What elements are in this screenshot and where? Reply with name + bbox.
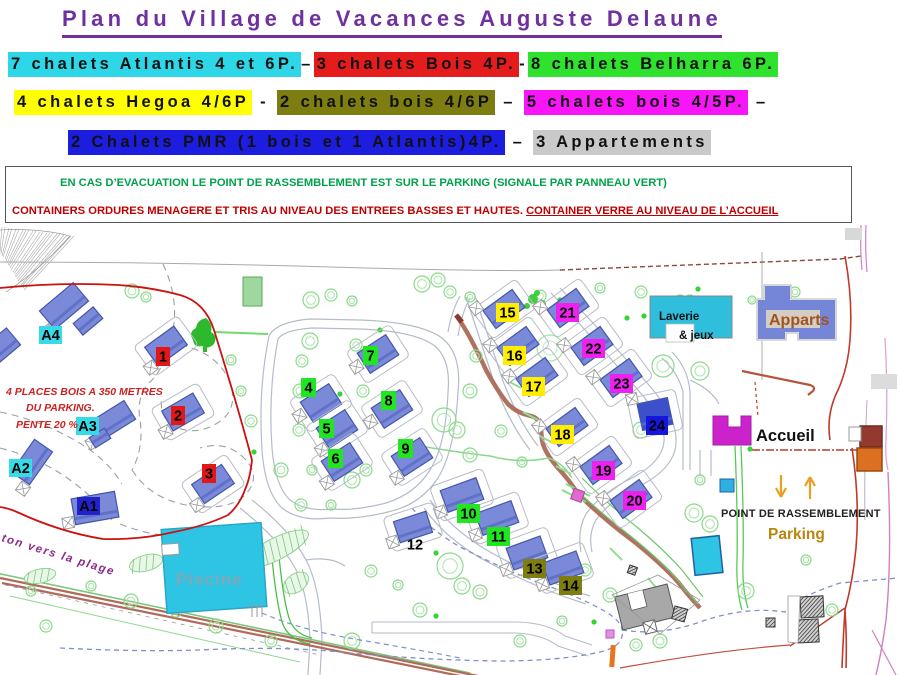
svg-text:4 PLACES BOIS A 350 METRES: 4 PLACES BOIS A 350 METRES: [5, 386, 163, 398]
svg-text:23: 23: [613, 377, 629, 393]
svg-text:DU PARKING.: DU PARKING.: [26, 402, 95, 414]
svg-text:3: 3: [205, 467, 213, 483]
svg-text:A1: A1: [79, 499, 98, 515]
svg-text:24: 24: [649, 419, 665, 435]
svg-text:ton vers la plage: ton vers la plage: [0, 532, 116, 578]
svg-text:1: 1: [159, 350, 167, 366]
svg-text:18: 18: [554, 428, 570, 444]
svg-text:19: 19: [595, 464, 611, 480]
svg-text:A4: A4: [41, 328, 60, 344]
svg-text:POINT DE RASSEMBLEMENT: POINT DE RASSEMBLEMENT: [721, 508, 881, 520]
svg-text:2: 2: [174, 409, 182, 425]
svg-text:15: 15: [499, 306, 515, 322]
svg-text:22: 22: [585, 342, 601, 358]
svg-text:8: 8: [384, 394, 392, 410]
svg-text:A2: A2: [11, 461, 30, 477]
svg-text:4: 4: [304, 381, 312, 397]
svg-text:7: 7: [366, 349, 374, 365]
svg-text:Parking: Parking: [768, 526, 825, 543]
svg-text:16: 16: [506, 349, 522, 365]
svg-text:12: 12: [407, 538, 423, 554]
svg-text:21: 21: [559, 306, 575, 322]
svg-text:Apparts: Apparts: [769, 312, 830, 329]
svg-text:A3: A3: [78, 419, 97, 435]
svg-text:Laverie: Laverie: [659, 311, 699, 323]
svg-text:Accueil: Accueil: [756, 427, 815, 445]
svg-text:14: 14: [562, 579, 578, 595]
svg-text:13: 13: [526, 562, 542, 578]
svg-text:Piscine: Piscine: [176, 570, 243, 589]
svg-text:20: 20: [626, 494, 642, 510]
svg-text:17: 17: [525, 380, 541, 396]
svg-text:10: 10: [460, 507, 476, 523]
svg-text:6: 6: [331, 452, 339, 468]
svg-text:PENTE 20 %: PENTE 20 %: [16, 419, 79, 431]
svg-text:& jeux: & jeux: [679, 330, 714, 342]
svg-text:9: 9: [401, 442, 409, 458]
svg-text:5: 5: [322, 422, 330, 438]
svg-text:11: 11: [491, 530, 506, 546]
